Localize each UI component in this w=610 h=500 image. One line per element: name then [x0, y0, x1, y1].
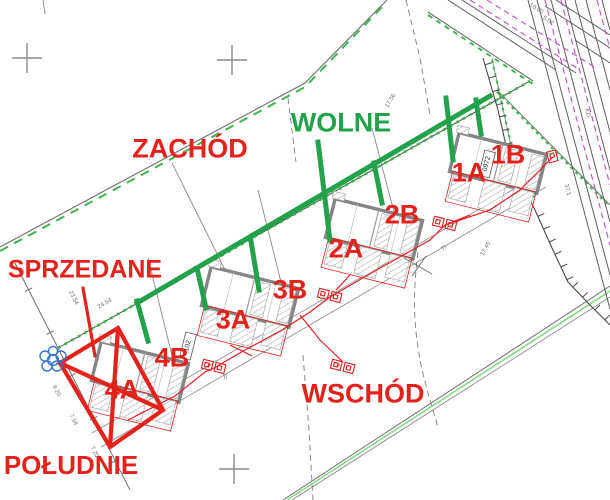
- unit-label-3b: 3B: [273, 277, 308, 304]
- label-wolne: WOLNE: [291, 110, 392, 137]
- unit-label-1a: 1A: [452, 160, 487, 187]
- label-poludnie: POŁUDNIE: [4, 452, 138, 478]
- unit-label-3a: 3A: [216, 307, 251, 334]
- bush-icon: [40, 347, 66, 372]
- unit-label-2b: 2B: [385, 202, 420, 229]
- label-sprzedane: SPRZEDANE: [8, 258, 162, 283]
- unit-label-1b: 1B: [491, 142, 526, 169]
- unit-label-2a: 2A: [329, 236, 364, 263]
- label-zachod: ZACHÓD: [132, 136, 248, 163]
- site-plan: ZACHÓD WOLNE SPRZEDANE WSCHÓD POŁUDNIE 1…: [0, 0, 610, 500]
- unit-label-4a: 4A: [105, 377, 140, 404]
- label-wschod: WSCHÓD: [302, 381, 425, 408]
- marker-text: Tl: [223, 375, 228, 381]
- site-plan-drawing: [0, 0, 610, 500]
